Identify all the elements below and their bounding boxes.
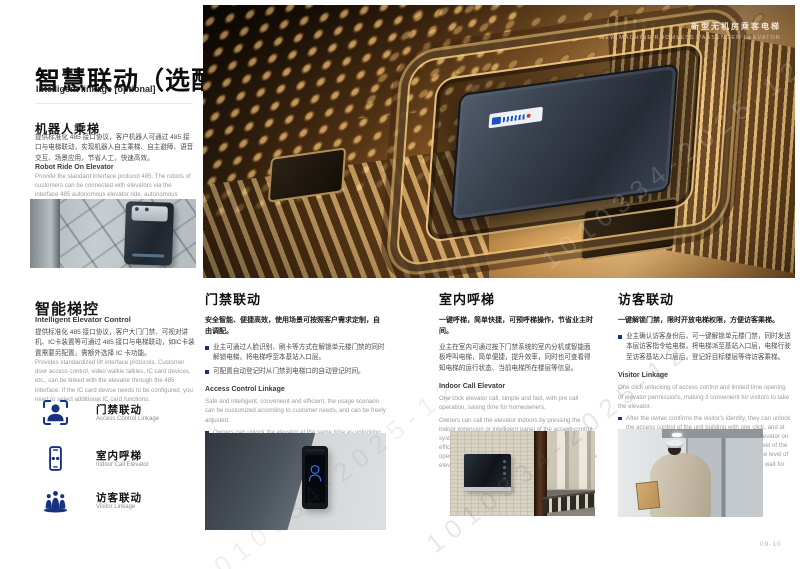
robot-body-zh: 提供标准化 485 接口协议，客户机器人可通过 485 接口与电梯联动，实现机器…	[35, 133, 195, 165]
robot-elevator-photo	[30, 199, 196, 268]
column-title: 访客联动	[618, 289, 792, 308]
feature-indoor-call: 室内呼梯 Indoor Call Elevator	[42, 445, 192, 479]
face-scan-icon	[42, 399, 69, 426]
control-section-title-en: Intelligent Elevator Control	[35, 315, 131, 324]
access-control-photo	[205, 433, 386, 530]
feature-label-en: Indoor Call Elevator	[96, 462, 149, 468]
courier-cap	[666, 440, 683, 448]
column-bullet-zh: 业主确认访客身份后，可一键解锁单元楼门禁，同时发送本层访客指令给电梯，将电梯派至…	[618, 332, 792, 364]
column-lead-en: One click elevator call, simple and fast…	[439, 394, 597, 412]
indoor-panel-photo	[450, 431, 595, 516]
column-body-zh: 业主在室内可通过按下门禁系统的室内分机或智能面板呼叫电梯，简单便捷，提升效率，同…	[439, 343, 597, 375]
column-bullet-zh: 可配置自动登记时从门禁到电梯口的自动登记时间。	[205, 367, 386, 378]
vignette-overlay	[203, 5, 795, 278]
product-tagline-en: NEW MACHINE ROOMLESS PASSENGER ELEVATOR	[600, 35, 781, 41]
divider	[35, 103, 193, 104]
feature-label-en: Visitor Linkage	[96, 504, 135, 510]
feature-label-zh: 访客联动	[96, 490, 142, 505]
feature-label-zh: 室内呼梯	[96, 448, 142, 463]
column-bullet-zh: 业主可通过人脸识别、刷卡等方式在解锁单元楼门禁的同时解锁电梯，将电梯呼至本基站入…	[205, 343, 386, 364]
tablet-icon	[42, 445, 69, 472]
hallway-doors	[547, 431, 595, 489]
indoor-intercom-panel	[464, 454, 511, 491]
delivery-robot	[124, 201, 174, 266]
elevator-door-frame	[30, 199, 60, 268]
robot-light-strip	[132, 253, 164, 257]
hero-tagline: 新型无机房乘客电梯 NEW MACHINE ROOMLESS PASSENGER…	[600, 21, 781, 41]
column-title-en: Access Control Linkage	[205, 386, 386, 393]
doorway-shadow	[205, 433, 317, 530]
control-body-en: Provides standardized lift interface pro…	[35, 358, 195, 404]
panel-buttons	[502, 459, 507, 479]
face-outline-graphic	[308, 463, 322, 483]
indicator-lamp	[672, 433, 682, 437]
device-screen	[305, 455, 325, 503]
brochure-page: 智慧联动（选配） Intelligent linkage [optional] …	[0, 0, 800, 569]
visitor-photo	[618, 429, 763, 517]
column-title: 室内呼梯	[439, 289, 597, 308]
people-icon	[42, 487, 69, 514]
feature-visitor-linkage: 访客联动 Visitor Linkage	[42, 487, 192, 521]
circuit-board-image: 新型无机房乘客电梯 NEW MACHINE ROOMLESS PASSENGER…	[203, 5, 795, 278]
robot-sensors	[134, 206, 154, 212]
hallway	[547, 431, 595, 516]
face-recognition-device	[302, 446, 328, 509]
hallway-floor-strip	[543, 490, 595, 512]
column-title-en: Visitor Linkage	[618, 372, 792, 379]
column-lead-en: One click unlocking of access control an…	[618, 383, 792, 410]
feature-access-control: 门禁联动 Access Control Linkage	[42, 399, 192, 433]
column-title: 门禁联动	[205, 289, 386, 308]
feature-label-en: Access Control Linkage	[96, 416, 159, 422]
robot-section-title-en: Robot Ride On Elevator	[35, 164, 114, 171]
parcel-box	[635, 481, 660, 510]
product-tagline-zh: 新型无机房乘客电梯	[600, 21, 781, 32]
column-lead-zh: 一键呼梯，简单快捷，可预呼梯操作，节省业主时间。	[439, 316, 597, 338]
column-lead-en: Safe and intelligent, convenient and eff…	[205, 397, 386, 424]
column-title-en: Indoor Call Elevator	[439, 383, 597, 390]
device-camera-bar	[305, 449, 325, 452]
column-lead-zh: 一键解锁门禁，限时开放电梯权限，方便访客乘梯。	[618, 316, 792, 327]
control-body-zh: 提供标准化 485 接口协议，客户大门门禁、可视对讲机、IC卡装置等可通过 48…	[35, 328, 195, 360]
column-lead-zh: 安全智能、便捷高效，使用场景可按照客户需求定制，自由调配。	[205, 316, 386, 338]
page-number: 09-10	[760, 541, 782, 548]
page-subtitle: Intelligent linkage [optional]	[36, 84, 156, 94]
feature-label-zh: 门禁联动	[96, 402, 142, 417]
